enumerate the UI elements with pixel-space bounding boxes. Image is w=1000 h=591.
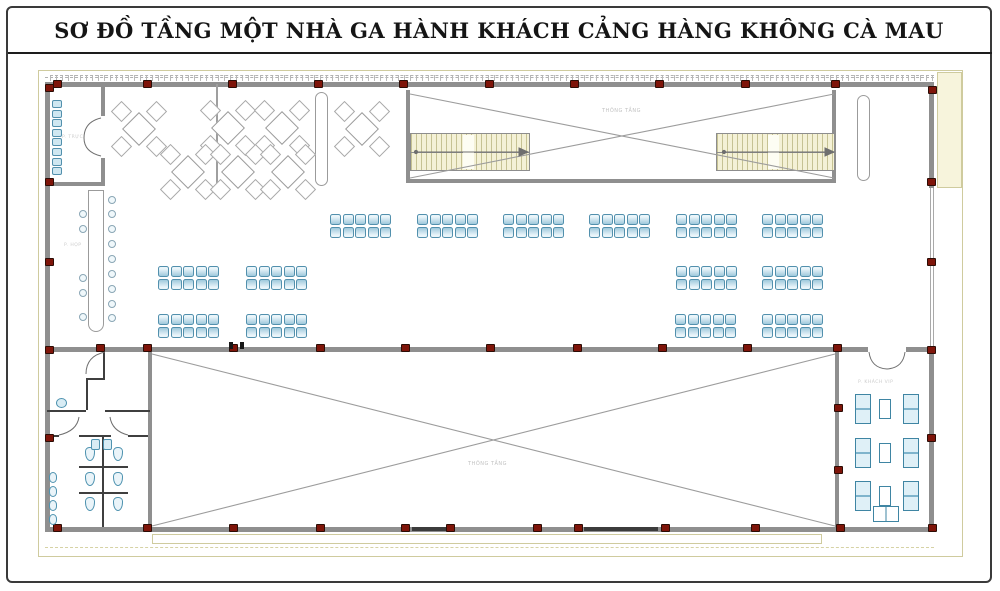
wall-bottom [45, 527, 934, 532]
waiting-seat [430, 214, 441, 225]
door-jamb [240, 342, 244, 349]
bench-row [762, 314, 826, 326]
waiting-seat [284, 266, 295, 277]
meeting-chair [108, 196, 116, 204]
waiting-seat [208, 266, 219, 277]
office-room-label: P. TRỰC [62, 135, 83, 140]
meeting-chair [108, 300, 116, 308]
column-marker [928, 86, 937, 94]
bench-row [676, 266, 740, 278]
column-marker [45, 346, 54, 354]
waiting-seat [800, 314, 811, 325]
column-marker [45, 434, 54, 442]
waiting-seat [284, 327, 295, 338]
waiting-seat [812, 227, 823, 238]
vip-left-wall [835, 352, 839, 527]
entrance-apron [152, 534, 822, 544]
waiting-bench-group [676, 266, 740, 292]
waiting-seat [553, 214, 564, 225]
waiting-bench-group [762, 214, 826, 240]
waiting-seat [271, 314, 282, 325]
column-marker [53, 80, 62, 88]
office-chair [52, 119, 62, 127]
bench-row [503, 214, 567, 226]
vip-sofa [855, 438, 871, 468]
waiting-seat [196, 327, 207, 338]
waiting-seat [259, 327, 270, 338]
waiting-seat [762, 314, 773, 325]
void-wall-bottom [406, 179, 836, 183]
meeting-chair [108, 225, 116, 233]
waiting-seat [528, 227, 539, 238]
waiting-seat [726, 279, 737, 290]
waiting-seat [343, 227, 354, 238]
waiting-seat [246, 266, 257, 277]
waiting-seat [726, 266, 737, 277]
waiting-seat [775, 227, 786, 238]
waiting-seat [812, 214, 823, 225]
cafe-chair [160, 144, 181, 165]
column-marker [573, 344, 582, 352]
waiting-seat [296, 327, 307, 338]
wall-right-middle [930, 188, 934, 347]
waiting-bench-group [246, 266, 310, 292]
bench-row [675, 314, 739, 326]
waiting-seat [812, 327, 823, 338]
vip-sofa [903, 438, 919, 468]
waiting-bench-group [676, 214, 740, 240]
wc-wall [79, 435, 111, 437]
waiting-bench-group [158, 266, 222, 292]
waiting-seat [627, 227, 638, 238]
screen-partition-left [315, 92, 328, 186]
wc-divider-wall [102, 437, 104, 527]
cafe-chair [111, 136, 132, 157]
office-chair [52, 148, 62, 156]
waiting-seat [503, 214, 514, 225]
column-marker [927, 346, 936, 354]
cafe-chair [160, 179, 181, 200]
waiting-seat [467, 214, 478, 225]
waiting-seat [800, 227, 811, 238]
waiting-seat [455, 227, 466, 238]
wall-left [45, 82, 50, 532]
column-marker [45, 258, 54, 266]
waiting-seat [675, 314, 686, 325]
entrance-door [584, 527, 658, 531]
waiting-seat [259, 266, 270, 277]
column-marker [401, 344, 410, 352]
bench-row [589, 214, 653, 226]
meeting-chair [79, 289, 87, 297]
waiting-seat [689, 266, 700, 277]
waiting-seat [343, 214, 354, 225]
waiting-seat [701, 279, 712, 290]
bench-row [762, 227, 826, 239]
waiting-bench-group [589, 214, 653, 240]
waiting-seat [417, 214, 428, 225]
vip-sofa [855, 481, 871, 511]
urinal-fixture [49, 472, 57, 483]
waiting-seat [183, 314, 194, 325]
office-wall-right-a [101, 82, 105, 116]
waiting-seat [787, 327, 798, 338]
column-marker [834, 466, 843, 474]
bench-row [417, 214, 481, 226]
void-bottom-label: THÔNG TẦNG [468, 461, 507, 467]
waiting-seat [614, 214, 625, 225]
column-marker [401, 524, 410, 532]
bench-row [158, 266, 222, 278]
cafe-chair [334, 136, 355, 157]
wc-wall [86, 378, 88, 410]
waiting-seat [602, 227, 613, 238]
waiting-seat [171, 279, 182, 290]
waiting-seat [726, 214, 737, 225]
waiting-seat [296, 266, 307, 277]
waiting-seat [713, 327, 724, 338]
urinal-fixture [49, 500, 57, 511]
bench-row [676, 227, 740, 239]
cafe-table-group [333, 100, 389, 156]
staircase-left [410, 133, 530, 171]
waiting-seat [812, 266, 823, 277]
cafe-chair [369, 101, 390, 122]
meeting-chair [79, 225, 87, 233]
waiting-seat [689, 214, 700, 225]
apron-dashed-line [45, 547, 934, 548]
waiting-seat [589, 214, 600, 225]
meeting-room-label: P. HỌP [64, 243, 82, 248]
meeting-chair [79, 210, 87, 218]
waiting-seat [368, 227, 379, 238]
waiting-seat [196, 279, 207, 290]
waiting-seat [762, 279, 773, 290]
column-marker [316, 524, 325, 532]
waiting-seat [442, 214, 453, 225]
column-marker [741, 80, 750, 88]
column-marker [485, 80, 494, 88]
meeting-chair [79, 274, 87, 282]
staircase-right [716, 133, 835, 171]
column-marker [486, 344, 495, 352]
vip-table [879, 443, 891, 463]
waiting-seat [676, 227, 687, 238]
waiting-seat [762, 327, 773, 338]
column-marker [574, 524, 583, 532]
waiting-seat [541, 214, 552, 225]
waiting-seat [183, 279, 194, 290]
wc-wall [47, 410, 86, 412]
waiting-bench-group [503, 214, 567, 240]
waiting-seat [762, 266, 773, 277]
cafe-chair [260, 179, 281, 200]
waiting-seat [762, 227, 773, 238]
column-marker [229, 524, 238, 532]
waiting-seat [528, 214, 539, 225]
vip-table [879, 399, 891, 419]
waiting-seat [775, 214, 786, 225]
bench-row [246, 279, 310, 291]
waiting-seat [503, 227, 514, 238]
void-top-label: THÔNG TẦNG [602, 108, 641, 114]
screen-partition-right [857, 95, 870, 181]
exterior-ramp-right [937, 72, 962, 188]
column-marker [836, 524, 845, 532]
column-marker [228, 80, 237, 88]
office-chair [52, 129, 62, 137]
column-marker [831, 80, 840, 88]
vip-room-label: P. KHÁCH VIP [858, 380, 893, 385]
bench-row [503, 227, 567, 239]
column-marker [751, 524, 760, 532]
meeting-chair [108, 240, 116, 248]
bench-row [762, 214, 826, 226]
bench-row [762, 266, 826, 278]
column-marker [661, 524, 670, 532]
cafe-chair [334, 101, 355, 122]
column-marker [927, 258, 936, 266]
bench-row [417, 227, 481, 239]
waiting-seat [589, 227, 600, 238]
waiting-bench-group [330, 214, 394, 240]
waiting-seat [158, 327, 169, 338]
waiting-seat [171, 266, 182, 277]
column-marker [96, 344, 105, 352]
wc-wall [86, 378, 105, 380]
waiting-seat [812, 314, 823, 325]
waiting-seat [208, 327, 219, 338]
bench-row [330, 227, 394, 239]
vip-table-large [873, 506, 899, 522]
waiting-seat [713, 314, 724, 325]
waiting-seat [271, 279, 282, 290]
waiting-seat [787, 227, 798, 238]
waiting-seat [787, 266, 798, 277]
waiting-seat [158, 266, 169, 277]
bench-row [762, 327, 826, 339]
cafe-chair [295, 179, 316, 200]
waiting-seat [183, 266, 194, 277]
waiting-seat [296, 314, 307, 325]
door-jamb [229, 342, 233, 349]
wall-mid-b [906, 347, 929, 352]
waiting-seat [516, 227, 527, 238]
waiting-seat [553, 227, 564, 238]
waiting-seat [330, 214, 341, 225]
waiting-seat [689, 227, 700, 238]
waiting-seat [675, 327, 686, 338]
waiting-seat [271, 327, 282, 338]
sink-fixture [103, 439, 112, 450]
vip-sofa [855, 394, 871, 424]
waiting-seat [246, 314, 257, 325]
column-marker [928, 524, 937, 532]
cafe-chair [289, 100, 310, 121]
column-marker [570, 80, 579, 88]
waiting-seat [602, 214, 613, 225]
waiting-seat [775, 279, 786, 290]
meeting-chair [108, 270, 116, 278]
waiting-seat [171, 314, 182, 325]
meeting-chair [79, 313, 87, 321]
waiting-seat [701, 266, 712, 277]
waiting-bench-group [158, 314, 222, 340]
bench-row [246, 266, 310, 278]
waiting-seat [296, 279, 307, 290]
column-marker [316, 344, 325, 352]
floor-plan-page: SƠ ĐỒ TẦNG MỘT NHÀ GA HÀNH KHÁCH CẢNG HÀ… [0, 0, 1000, 591]
waiting-seat [676, 266, 687, 277]
column-marker [399, 80, 408, 88]
waiting-seat [442, 227, 453, 238]
bench-row [676, 279, 740, 291]
column-marker [143, 524, 152, 532]
waiting-seat [688, 314, 699, 325]
sink-fixture [56, 398, 67, 408]
office-chair [52, 167, 62, 175]
waiting-seat [800, 327, 811, 338]
waiting-seat [196, 266, 207, 277]
waiting-seat [208, 279, 219, 290]
cafe-chair [295, 144, 316, 165]
waiting-seat [800, 266, 811, 277]
waiting-seat [726, 227, 737, 238]
vip-sofa [903, 394, 919, 424]
office-chair [52, 138, 62, 146]
wc-wall [105, 410, 150, 412]
wc-wall [128, 435, 148, 437]
bench-row [246, 314, 310, 326]
waiting-seat [627, 214, 638, 225]
office-chair [52, 100, 62, 108]
bench-row [158, 314, 222, 326]
waiting-seat [701, 214, 712, 225]
waiting-bench-group [762, 314, 826, 340]
vip-sofa [903, 481, 919, 511]
wc-wall [103, 352, 105, 378]
waiting-seat [676, 214, 687, 225]
waiting-bench-group [417, 214, 481, 240]
sink-fixture [91, 439, 100, 450]
cafe-chair [260, 144, 281, 165]
waiting-seat [787, 214, 798, 225]
cafe-chair [200, 100, 221, 121]
waiting-seat [330, 227, 341, 238]
floor-plan: THÔNG TẦNG THÔNG TẦNG P. KHÁCH VIP P. TR… [0, 53, 1000, 591]
waiting-seat [259, 314, 270, 325]
urinal-fixture [49, 514, 57, 525]
waiting-seat [516, 214, 527, 225]
cafe-table-group [209, 143, 265, 199]
column-marker [533, 524, 542, 532]
urinal-fixture [49, 486, 57, 497]
column-marker [658, 344, 667, 352]
waiting-seat [183, 327, 194, 338]
bench-row [158, 279, 222, 291]
waiting-seat [775, 327, 786, 338]
waiting-seat [158, 314, 169, 325]
waiting-seat [455, 214, 466, 225]
column-marker [143, 344, 152, 352]
waiting-seat [800, 279, 811, 290]
waiting-seat [614, 227, 625, 238]
waiting-seat [812, 279, 823, 290]
column-marker [45, 178, 54, 186]
waiting-seat [762, 214, 773, 225]
waiting-seat [688, 327, 699, 338]
entrance-door [412, 527, 446, 531]
waiting-seat [787, 314, 798, 325]
column-marker [53, 524, 62, 532]
waiting-seat [417, 227, 428, 238]
waiting-seat [700, 314, 711, 325]
office-chair [52, 158, 62, 166]
waiting-seat [775, 314, 786, 325]
waiting-seat [430, 227, 441, 238]
waiting-bench-group [762, 266, 826, 292]
waiting-bench-group [675, 314, 739, 340]
bench-row [158, 327, 222, 339]
column-marker [314, 80, 323, 88]
wall-right-upper [929, 86, 934, 188]
bench-row [330, 214, 394, 226]
waiting-seat [787, 279, 798, 290]
waiting-seat [355, 214, 366, 225]
column-marker [446, 524, 455, 532]
bench-row [676, 214, 740, 226]
waiting-seat [714, 214, 725, 225]
waiting-seat [259, 279, 270, 290]
meeting-chair [108, 285, 116, 293]
cafe-chair [254, 100, 275, 121]
waiting-seat [158, 279, 169, 290]
waiting-seat [284, 279, 295, 290]
meeting-table [88, 190, 104, 332]
column-marker [743, 344, 752, 352]
waiting-seat [246, 327, 257, 338]
waiting-seat [355, 227, 366, 238]
waiting-seat [689, 279, 700, 290]
wc-stall-wall [79, 466, 128, 468]
waiting-seat [380, 227, 391, 238]
waiting-seat [541, 227, 552, 238]
column-marker [927, 178, 936, 186]
waiting-seat [171, 327, 182, 338]
waiting-seat [775, 266, 786, 277]
waiting-seat [208, 314, 219, 325]
waiting-seat [800, 214, 811, 225]
bench-row [675, 327, 739, 339]
cafe-table-group [110, 100, 166, 156]
column-marker [655, 80, 664, 88]
waiting-seat [714, 266, 725, 277]
hall-left-wall [148, 352, 152, 527]
meeting-chair [108, 255, 116, 263]
waiting-seat [700, 327, 711, 338]
waiting-seat [246, 279, 257, 290]
cafe-table-group [259, 143, 315, 199]
waiting-bench-group [246, 314, 310, 340]
column-marker [927, 434, 936, 442]
bench-row [589, 227, 653, 239]
bench-row [246, 327, 310, 339]
office-chair [52, 110, 62, 118]
cafe-chair [210, 144, 231, 165]
bench-row [762, 279, 826, 291]
waiting-seat [676, 279, 687, 290]
column-marker [143, 80, 152, 88]
